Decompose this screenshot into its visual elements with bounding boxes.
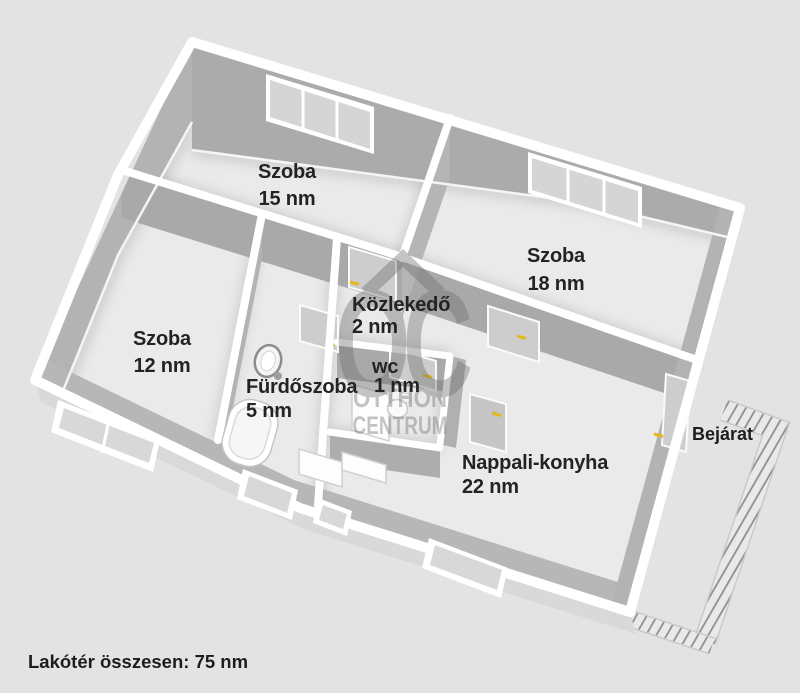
entrance-label: Bejárat	[692, 424, 753, 444]
watermark: OC OTTHON CENTRUM	[335, 258, 471, 440]
floorplan-screenshot: OC OTTHON CENTRUM Szoba 15 nm Szoba 18 n…	[0, 0, 800, 693]
room-area: 12 nm	[134, 355, 191, 377]
room-area: 5 nm	[246, 400, 292, 422]
watermark-line2: CENTRUM	[353, 412, 448, 440]
room-area: 18 nm	[528, 273, 585, 295]
room-area: 22 nm	[462, 476, 519, 498]
room-name: Nappali-konyha	[462, 452, 609, 474]
room-name: Közlekedő	[352, 294, 450, 316]
tall-cabinet	[470, 394, 506, 452]
floorplan-canvas: OC OTTHON CENTRUM Szoba 15 nm Szoba 18 n…	[0, 0, 800, 693]
room-name: Szoba	[527, 245, 586, 267]
room-area: 15 nm	[259, 188, 316, 210]
total-area-label: Lakótér összesen: 75 nm	[28, 651, 248, 672]
room-area: 2 nm	[352, 316, 398, 338]
room-name: Fürdőszoba	[246, 376, 358, 398]
room-name: Szoba	[258, 161, 317, 183]
room-area: 1 nm	[374, 375, 420, 397]
room-name: Szoba	[133, 328, 192, 350]
